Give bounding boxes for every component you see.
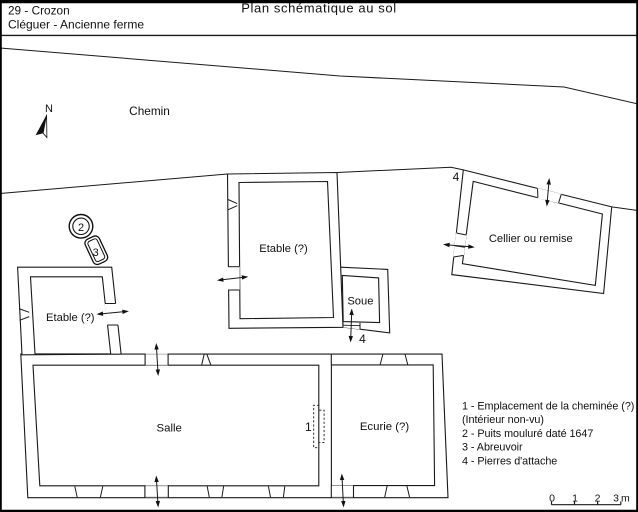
svg-text:4 - Pierres d'attache: 4 - Pierres d'attache — [462, 455, 557, 467]
svg-text:2 - Puits mouluré daté 1647: 2 - Puits mouluré daté 1647 — [462, 428, 593, 440]
svg-text:(Intérieur non-vu): (Intérieur non-vu) — [462, 414, 544, 426]
svg-text:2: 2 — [595, 492, 601, 504]
svg-text:Etable (?): Etable (?) — [259, 243, 308, 255]
svg-text:1 - Emplacement de la cheminée: 1 - Emplacement de la cheminée (?) — [462, 401, 634, 413]
svg-text:3: 3 — [93, 247, 99, 259]
svg-text:Cellier ou remise: Cellier ou remise — [489, 233, 573, 245]
svg-text:2: 2 — [78, 222, 84, 234]
svg-text:1: 1 — [305, 420, 312, 434]
svg-text:Cléguer - Ancienne ferme: Cléguer - Ancienne ferme — [8, 18, 144, 32]
svg-text:1: 1 — [572, 492, 578, 504]
svg-text:N: N — [45, 103, 53, 115]
svg-text:Chemin: Chemin — [129, 104, 170, 118]
svg-text:0: 0 — [549, 492, 555, 504]
svg-text:m: m — [621, 492, 630, 504]
svg-text:29 - Crozon: 29 - Crozon — [8, 4, 70, 18]
svg-text:4: 4 — [453, 170, 460, 184]
svg-text:4: 4 — [359, 332, 366, 346]
svg-text:Etable (?): Etable (?) — [46, 312, 95, 324]
svg-text:Soue: Soue — [347, 296, 373, 308]
svg-text:3: 3 — [613, 492, 619, 504]
svg-text:Salle: Salle — [157, 423, 182, 435]
svg-text:Ecurie (?): Ecurie (?) — [360, 421, 410, 433]
svg-text:3 - Abreuvoir: 3 - Abreuvoir — [462, 442, 523, 454]
